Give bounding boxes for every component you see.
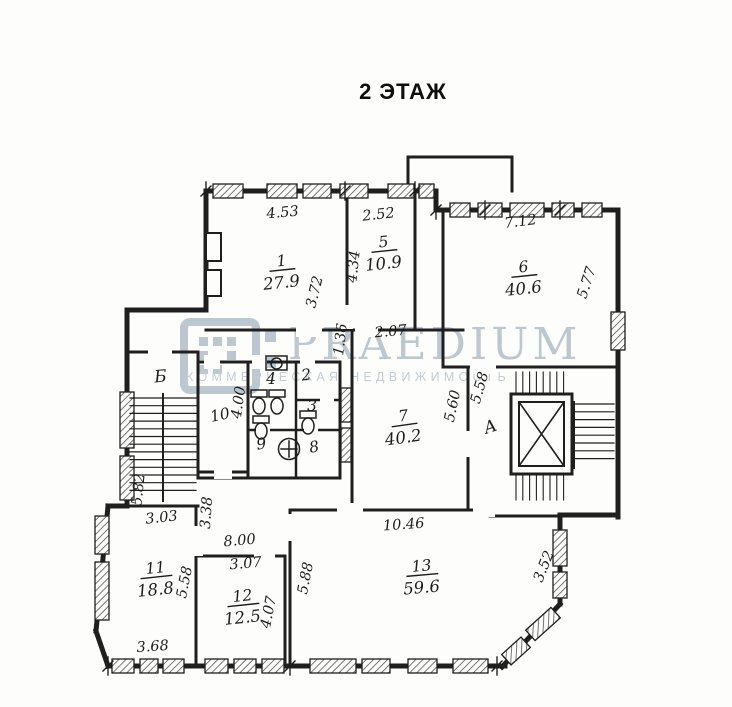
dimension-label: 5.60 — [442, 389, 464, 424]
dimension-label: 2.52 — [361, 205, 396, 224]
dimension-label: 10.46 — [382, 516, 425, 535]
room-number: 4 — [265, 370, 276, 388]
dimension-label: 3.03 — [145, 508, 179, 527]
room-number: 9 — [255, 434, 267, 453]
dimension-label: 4.07 — [258, 594, 280, 630]
dimension-label: 3.07 — [229, 555, 263, 574]
dimension-label: 5.88 — [295, 561, 317, 596]
room-number: 12 — [232, 586, 254, 606]
dimension-label: 3.68 — [136, 638, 169, 656]
room-number: 7 — [397, 406, 409, 425]
basin-icon — [279, 439, 300, 460]
room-area: 40.6 — [503, 277, 543, 300]
stairwell-letter: А — [480, 416, 499, 439]
room-number: 3 — [307, 397, 317, 415]
dimension-label: 4.34 — [344, 250, 363, 285]
dimension-label: 4.00 — [229, 385, 249, 420]
dimension-label: 5.82 — [129, 473, 148, 507]
dimension-label: 5.58 — [174, 565, 196, 600]
floor-plan-drawing: PRAEDIUM КОММЕРЧЕСКАЯ НЕДВИЖИМОСТЬ — [0, 0, 732, 707]
room-number: 11 — [145, 558, 167, 578]
elevator-shaft-icon — [511, 394, 572, 474]
watermark-subtitle-text: КОММЕРЧЕСКАЯ НЕДВИЖИМОСТЬ — [186, 370, 510, 384]
room-number: 10 — [208, 404, 231, 426]
dimension-label: 3.72 — [303, 274, 326, 309]
room-number: 8 — [308, 437, 321, 456]
room-area: 18.8 — [136, 578, 175, 601]
room-area: 40.2 — [383, 426, 423, 450]
room-area: 59.6 — [402, 576, 440, 598]
dimension-label: 5.77 — [575, 264, 600, 300]
dimension-label: 4.53 — [265, 204, 300, 223]
page-title: 2 ЭТАЖ — [359, 79, 447, 104]
dimension-label: 7.12 — [504, 212, 538, 232]
stairs-a — [574, 402, 614, 468]
toilet-icon — [269, 390, 285, 414]
room-area: 27.9 — [261, 271, 301, 294]
scanned-floor-plan-page: PRAEDIUM КОММЕРЧЕСКАЯ НЕДВИЖИМОСТЬ — [0, 0, 732, 707]
vent-ducts — [341, 388, 351, 462]
dimension-label: 3.38 — [198, 496, 216, 529]
room-number: 5 — [378, 233, 390, 252]
toilet-icon — [251, 390, 267, 414]
room-area: 12.5 — [223, 606, 262, 629]
dimension-label: 8.00 — [223, 532, 257, 551]
room-number: 6 — [518, 258, 530, 277]
dimension-label: 2.07 — [373, 323, 408, 342]
room-and-dimension-labels: 127.9510.9640.6740.21118.81212.51359.623… — [129, 204, 600, 656]
room-area: 10.9 — [364, 252, 403, 275]
stairwell-letter: Б — [152, 366, 168, 387]
room-number: 13 — [411, 556, 432, 576]
room-number: 1 — [276, 252, 288, 271]
